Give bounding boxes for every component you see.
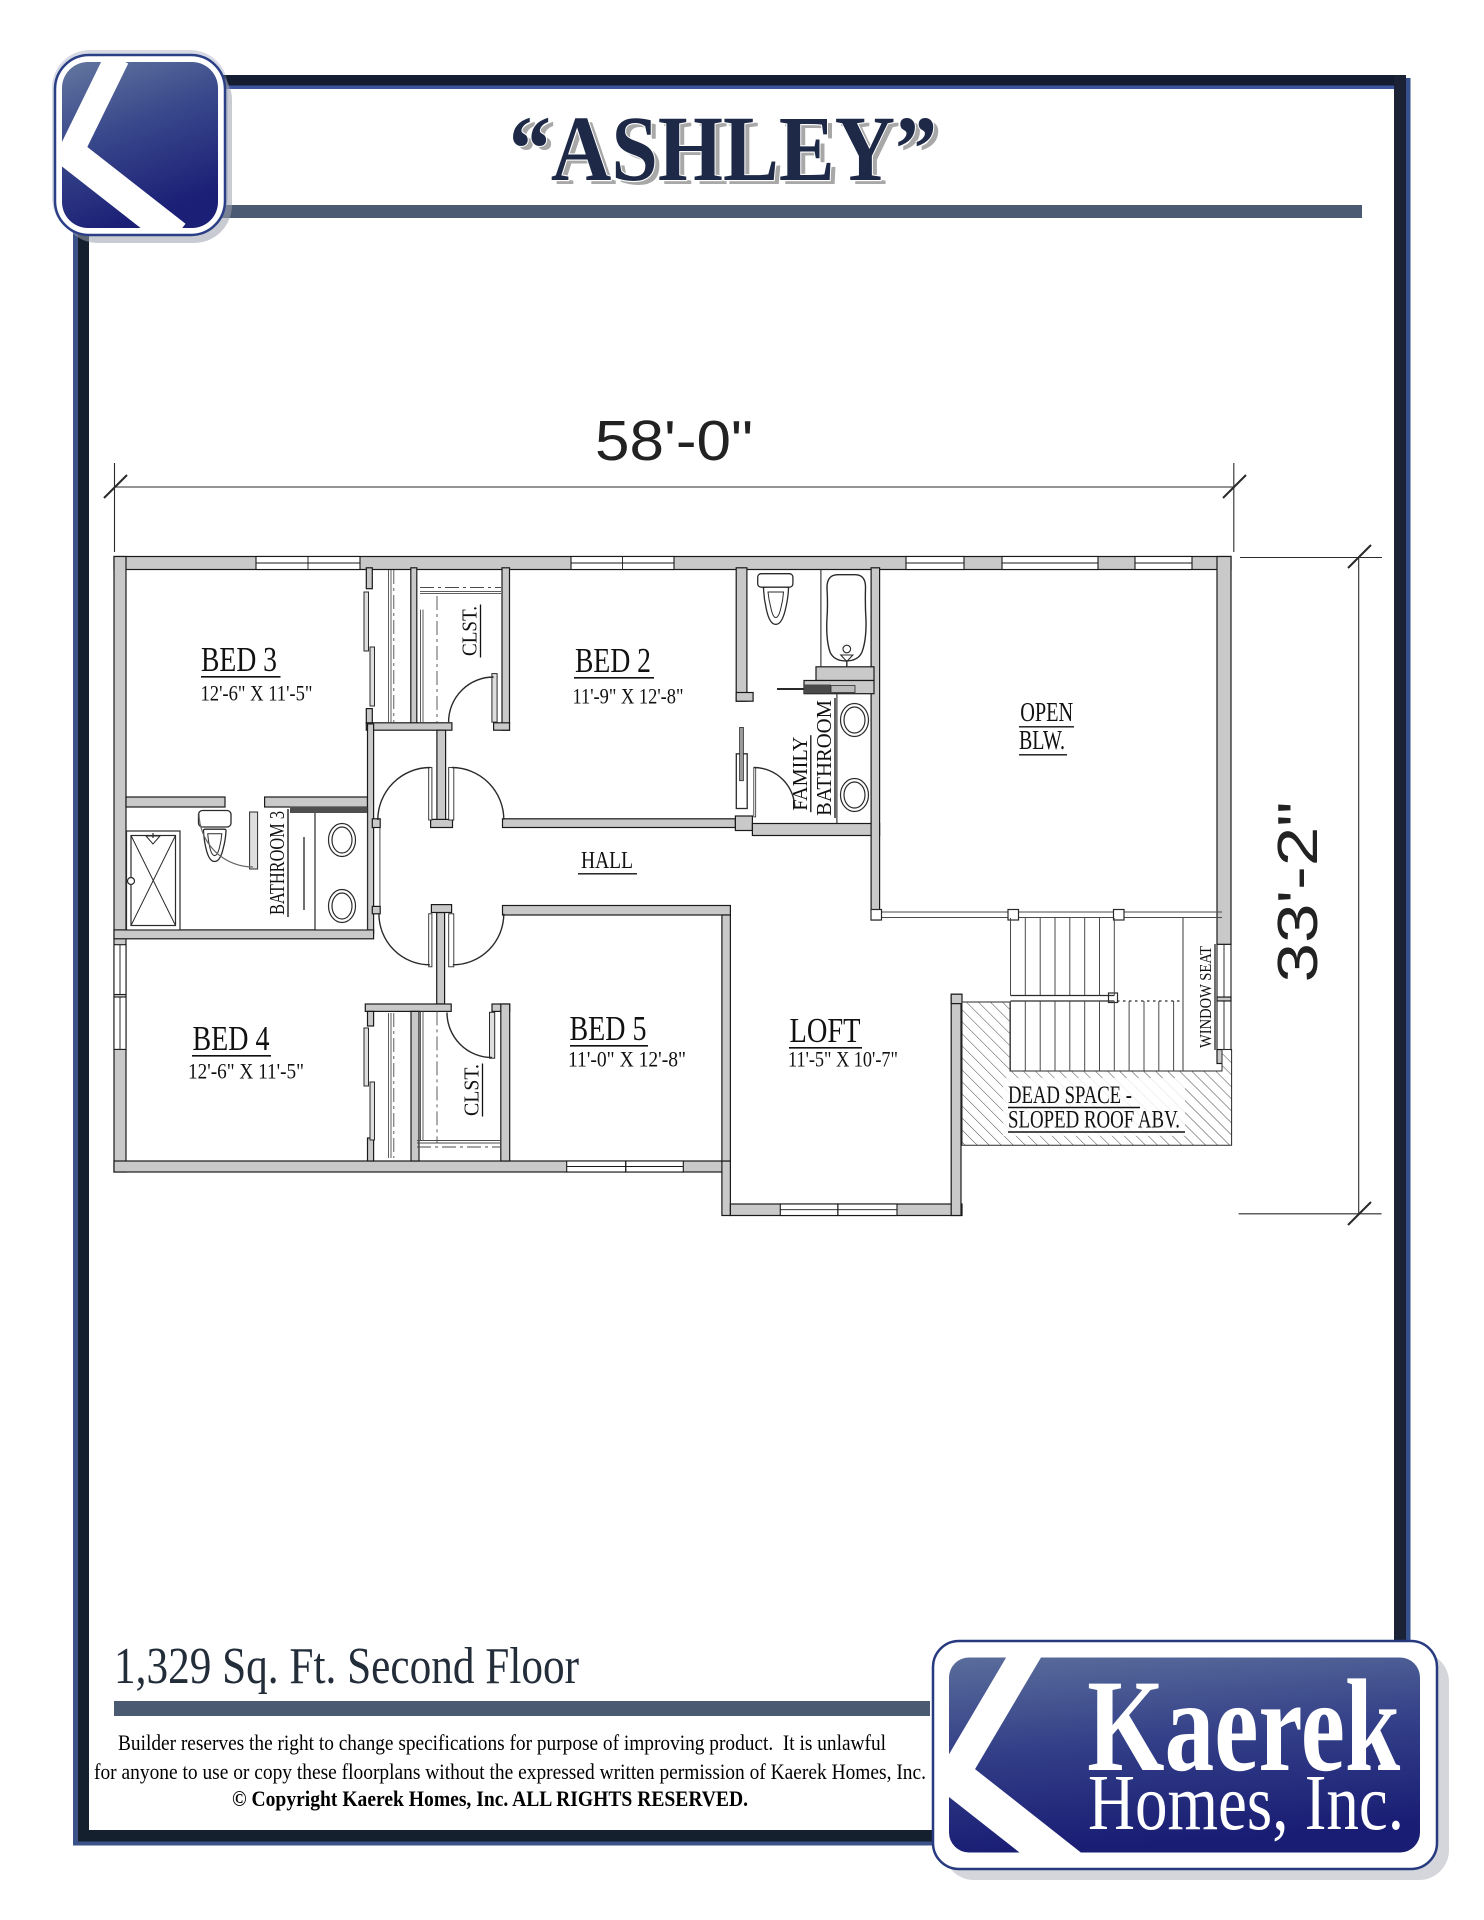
svg-text:BATHROOM 3: BATHROOM 3 bbox=[265, 811, 289, 915]
svg-text:BED 3: BED 3 bbox=[201, 640, 277, 679]
svg-text:WINDOW SEAT: WINDOW SEAT bbox=[1196, 946, 1215, 1048]
svg-text:BATHROOM: BATHROOM bbox=[812, 700, 836, 816]
svg-text:BED 2: BED 2 bbox=[575, 641, 651, 680]
svg-text:SLOPED ROOF ABV.: SLOPED ROOF ABV. bbox=[1008, 1107, 1180, 1134]
svg-text:BLW.: BLW. bbox=[1019, 725, 1065, 755]
svg-text:CLST.: CLST. bbox=[458, 606, 482, 656]
svg-text:12'-6" X 11'-5": 12'-6" X 11'-5" bbox=[201, 681, 313, 706]
svg-text:11'-9" X 12'-8": 11'-9" X 12'-8" bbox=[573, 684, 684, 709]
svg-text:CLST.: CLST. bbox=[460, 1064, 484, 1116]
svg-text:33'-2": 33'-2" bbox=[1266, 802, 1330, 983]
svg-text:12'-6" X 11'-5": 12'-6" X 11'-5" bbox=[188, 1059, 304, 1084]
svg-text:© Copyright Kaerek Homes, Inc.: © Copyright Kaerek Homes, Inc. ALL RIGHT… bbox=[232, 1786, 748, 1811]
svg-text:HALL: HALL bbox=[581, 847, 633, 874]
svg-text:DEAD SPACE -: DEAD SPACE - bbox=[1008, 1082, 1132, 1109]
svg-text:OPEN: OPEN bbox=[1020, 697, 1073, 727]
svg-text:LOFT: LOFT bbox=[790, 1011, 861, 1050]
svg-text:“ASHLEY”: “ASHLEY” bbox=[509, 98, 937, 201]
svg-text:BED 4: BED 4 bbox=[193, 1019, 270, 1058]
svg-text:Builder reserves the right to: Builder reserves the right to change spe… bbox=[118, 1730, 886, 1755]
svg-text:FAMILY: FAMILY bbox=[788, 737, 812, 811]
svg-text:Homes, Inc.: Homes, Inc. bbox=[1088, 1760, 1404, 1847]
svg-text:for anyone to use or copy thes: for anyone to use or copy these floorpla… bbox=[94, 1759, 926, 1784]
svg-text:1,329 Sq. Ft. Second Floor: 1,329 Sq. Ft. Second Floor bbox=[114, 1638, 579, 1695]
svg-text:58'-0": 58'-0" bbox=[595, 409, 753, 473]
svg-text:11'-5" X 10'-7": 11'-5" X 10'-7" bbox=[788, 1047, 898, 1072]
svg-text:11'-0" X 12'-8": 11'-0" X 12'-8" bbox=[568, 1047, 686, 1072]
svg-text:BED 5: BED 5 bbox=[570, 1009, 647, 1048]
